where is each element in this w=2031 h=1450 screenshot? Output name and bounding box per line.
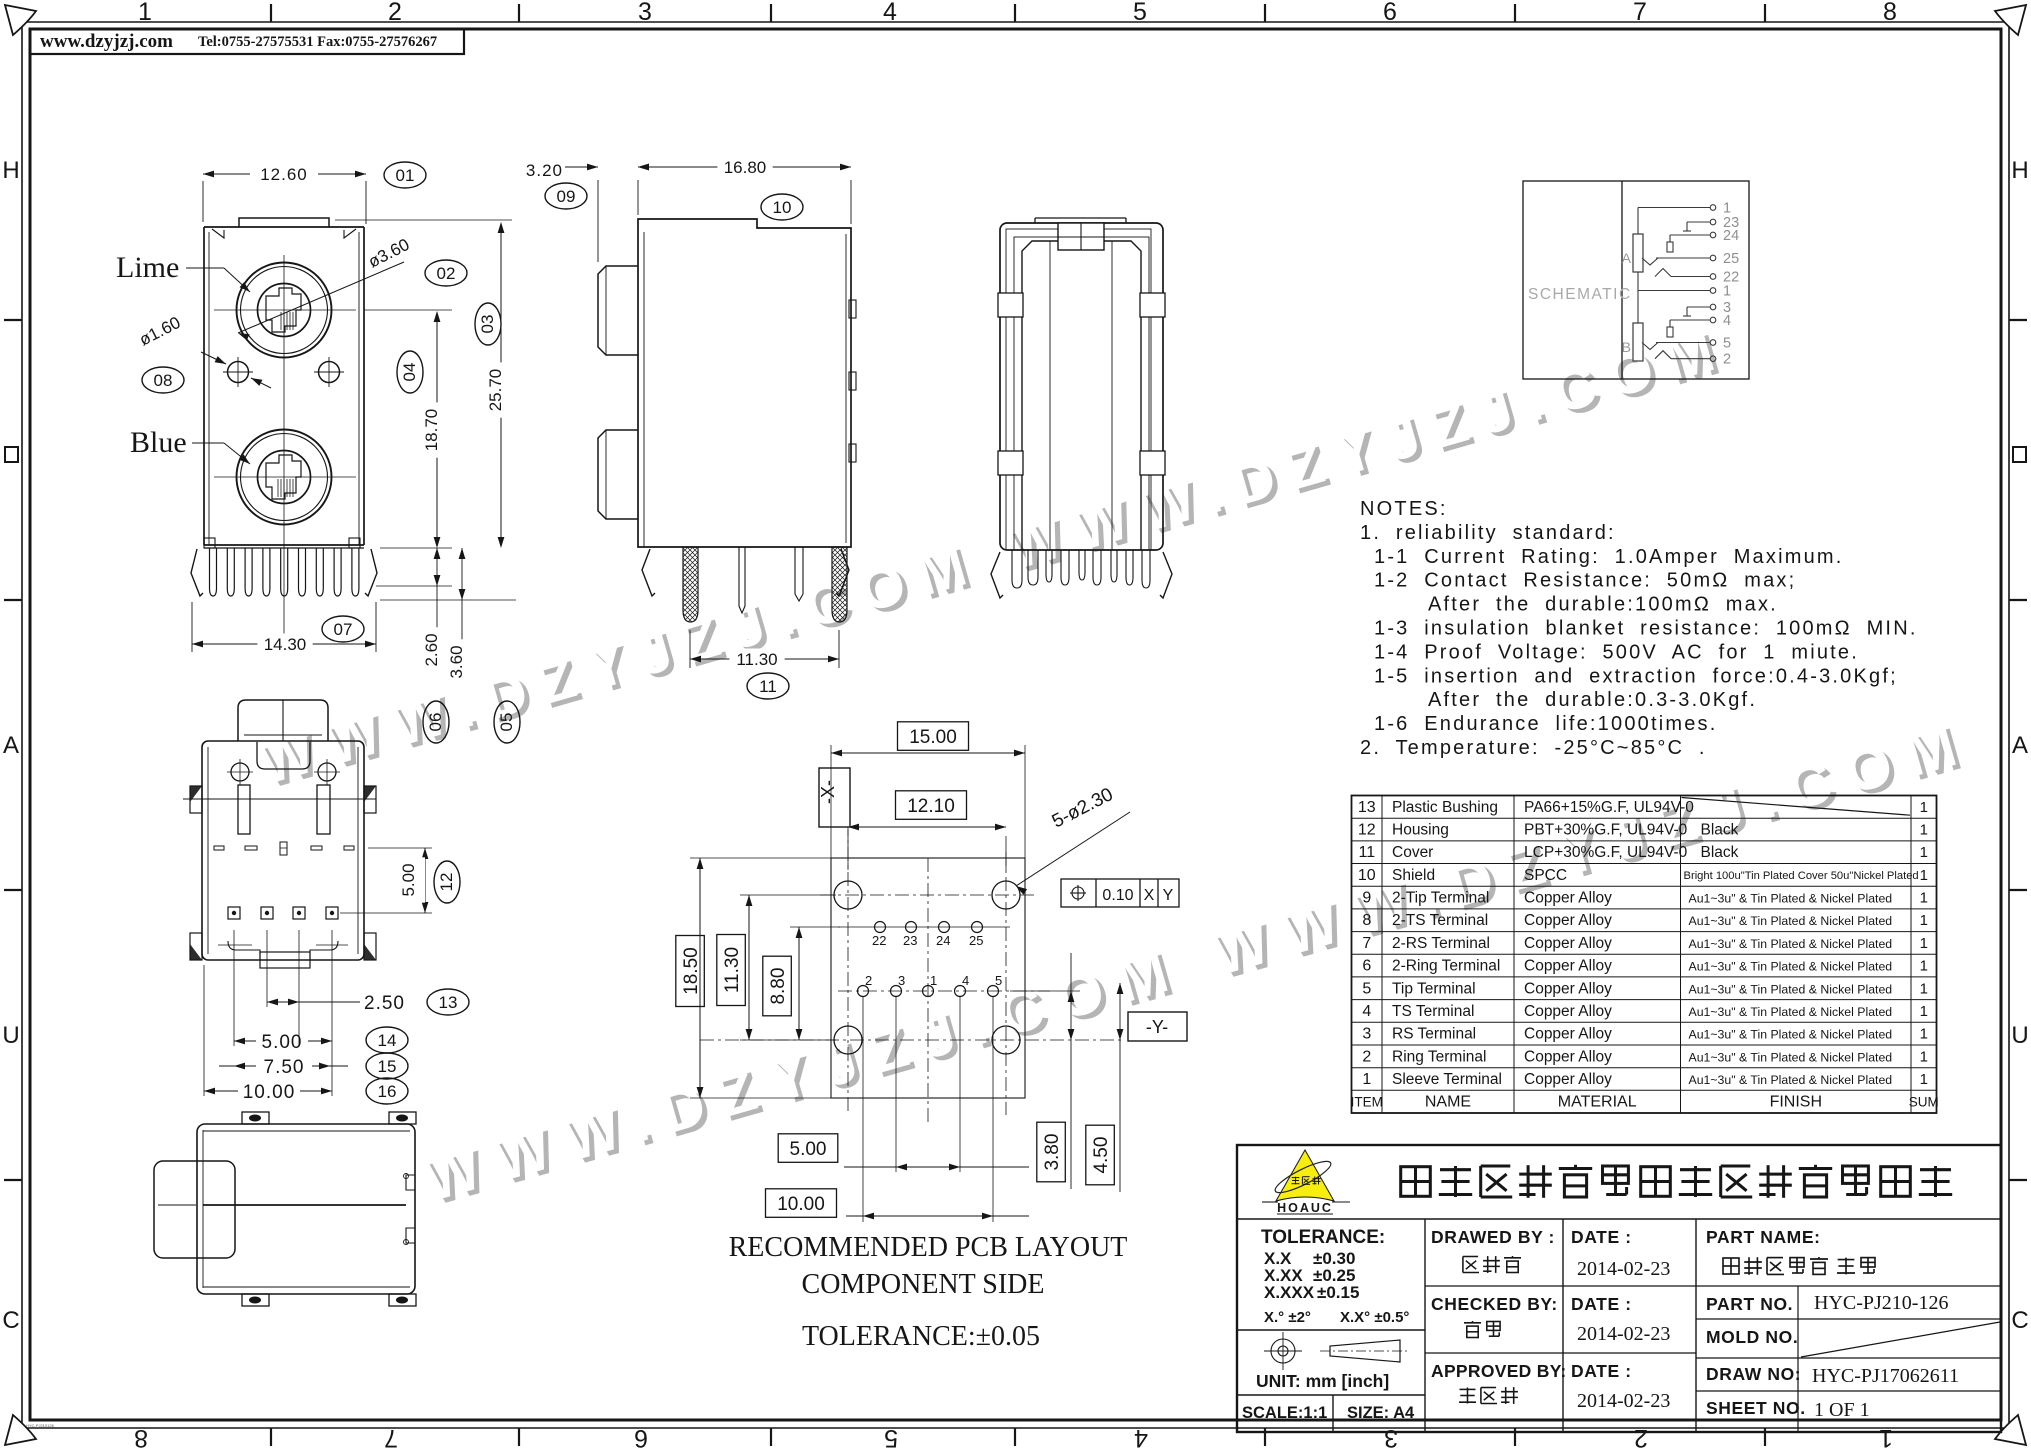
svg-text:2: 2 [1634,1424,1648,1450]
svg-text:1: 1 [1920,958,1928,975]
svg-text:1-2 Contact Resistance: 50mΩ: 1-2 Contact Resistance: 50mΩ max; [1374,570,1796,592]
svg-text:15.00: 15.00 [909,727,957,748]
svg-text:12.60: 12.60 [260,165,308,184]
svg-text:After the durable:0.3-3.0Kgf.: After the durable:0.3-3.0Kgf. [1428,689,1757,711]
svg-text:5: 5 [1362,980,1371,997]
svg-text:Copper Alloy: Copper Alloy [1524,1071,1612,1088]
svg-text:2: 2 [388,0,402,26]
svg-text:3: 3 [638,0,652,26]
svg-text:1: 1 [1920,890,1928,907]
svg-text:1-5 insertion and extraction: 1-5 insertion and extraction force:0.4-3… [1374,665,1898,687]
svg-text:U: U [2011,1022,2028,1049]
svg-text:U: U [2,1022,19,1049]
svg-text:15: 15 [378,1057,397,1076]
svg-text:5: 5 [1133,0,1147,26]
svg-text:HYC-PJ210126: HYC-PJ210126 [26,1423,55,1428]
svg-text:Au1~3u" & Tin Plated & Ni: Au1~3u" & Tin Plated & Nickel Plated [1689,1028,1893,1042]
svg-text:After the durable:100mΩ max.: After the durable:100mΩ max. [1428,594,1778,616]
svg-text:1: 1 [138,0,152,26]
svg-text:SHEET NO.: SHEET NO. [1706,1398,1806,1418]
svg-text:8: 8 [1883,0,1897,26]
svg-text:1: 1 [1920,1048,1928,1065]
svg-text:18.50: 18.50 [681,947,702,995]
svg-text:Shield: Shield [1392,867,1435,884]
svg-text:3.20: 3.20 [526,161,563,180]
svg-text:SCALE:1:1: SCALE:1:1 [1242,1404,1327,1422]
svg-text:C: C [2011,1307,2028,1334]
svg-text:SIZE: A4: SIZE: A4 [1347,1404,1415,1422]
svg-text:Tel:0755-27575531 Fax:0755-27: Tel:0755-27575531 Fax:0755-27576267 [198,34,437,50]
svg-text:DATE :: DATE : [1571,1361,1632,1381]
svg-text:11.30: 11.30 [722,947,743,993]
svg-text:8: 8 [134,1424,148,1450]
svg-text:12: 12 [1358,822,1376,839]
svg-text:1: 1 [1920,867,1928,884]
svg-text:1-3 insulation blanket resis: 1-3 insulation blanket resistance: 100mΩ… [1374,618,1918,640]
svg-text:HYC-PJ17062611: HYC-PJ17062611 [1812,1365,1959,1387]
svg-text:DRAW NO:: DRAW NO: [1706,1364,1801,1384]
svg-text:Au1~3u" & Tin Plated & Ni: Au1~3u" & Tin Plated & Nickel Plated [1689,982,1893,996]
svg-text:18.70: 18.70 [422,409,441,452]
svg-text:HYC-PJ210-126: HYC-PJ210-126 [1814,1292,1948,1314]
svg-text:8: 8 [1362,912,1371,929]
svg-text:1: 1 [1920,844,1928,861]
svg-text:25: 25 [1723,251,1739,267]
svg-text:13: 13 [1358,799,1376,816]
svg-text:DRAWED BY :: DRAWED BY : [1431,1227,1555,1247]
svg-text:Au1~3u" & Tin Plated & Ni: Au1~3u" & Tin Plated & Nickel Plated [1689,960,1893,974]
svg-text:14: 14 [378,1031,397,1050]
svg-text:DATE :: DATE : [1571,1227,1632,1247]
svg-text:1: 1 [1879,1424,1893,1450]
svg-text:24: 24 [936,933,950,948]
svg-text:25.70: 25.70 [486,369,505,412]
svg-text:1 OF 1: 1 OF 1 [1814,1399,1870,1421]
svg-text:1-1 Current Rating: 1.0Amper: 1-1 Current Rating: 1.0Amper Maximum. [1374,546,1844,568]
svg-text:SPCC: SPCC [1524,867,1567,884]
svg-text:X: X [1144,887,1155,904]
svg-text:ITEM: ITEM [1351,1095,1383,1110]
svg-text:2: 2 [1362,1048,1371,1065]
svg-text:LCP+30%G.F, UL94V-0: LCP+30%G.F, UL94V-0 [1524,844,1688,861]
svg-text:Au1~3u" & Tin Plated & Ni: Au1~3u" & Tin Plated & Nickel Plated [1689,914,1893,928]
svg-text:5: 5 [884,1424,898,1450]
svg-text:1: 1 [1362,1071,1371,1088]
svg-text:2: 2 [1723,352,1731,368]
svg-text:1: 1 [1920,935,1928,952]
svg-text:4.50: 4.50 [1091,1137,1112,1174]
svg-text:Bright 100u"Tin Plated Cove: Bright 100u"Tin Plated Cover 50u"Nickel … [1684,870,1919,882]
svg-text:3: 3 [898,973,905,988]
svg-text:1: 1 [1920,1071,1928,1088]
svg-text:B: B [1622,339,1631,355]
svg-text:3.60: 3.60 [447,645,466,678]
svg-text:24: 24 [1723,228,1739,244]
svg-text:2-RS Terminal: 2-RS Terminal [1392,935,1490,952]
svg-text:6: 6 [1362,958,1371,975]
svg-text:±0.15: ±0.15 [1317,1283,1359,1302]
svg-text:DATE :: DATE : [1571,1294,1632,1314]
svg-text:Sleeve Terminal: Sleeve Terminal [1392,1071,1502,1088]
svg-text:Au1~3u" & Tin Plated & Ni: Au1~3u" & Tin Plated & Nickel Plated [1689,937,1893,951]
svg-text:08: 08 [154,371,173,390]
svg-text:13: 13 [439,993,458,1012]
svg-text:Copper Alloy: Copper Alloy [1524,980,1612,997]
svg-text:4: 4 [1362,1003,1371,1020]
svg-text:7: 7 [1362,935,1371,952]
svg-text:Plastic Bushing: Plastic Bushing [1392,799,1498,816]
svg-text:04: 04 [400,363,419,382]
svg-text:H: H [2,157,19,184]
svg-text:6: 6 [1383,0,1397,26]
svg-text:1: 1 [1723,284,1731,300]
svg-text:Au1~3u" & Tin Plated & Ni: Au1~3u" & Tin Plated & Nickel Plated [1689,1005,1893,1019]
svg-text:X.XXX: X.XXX [1264,1283,1315,1302]
svg-text:10: 10 [773,198,792,217]
svg-text:9: 9 [1362,890,1371,907]
svg-text:Copper Alloy: Copper Alloy [1524,1003,1612,1020]
svg-text:12: 12 [437,873,456,892]
svg-text:10.00: 10.00 [243,1082,296,1103]
svg-text:11.30: 11.30 [736,650,777,669]
svg-text:1. reliability standard:: 1. reliability standard: [1360,522,1616,544]
svg-text:1: 1 [1920,822,1928,839]
svg-text:Tip Terminal: Tip Terminal [1392,980,1476,997]
svg-text:1: 1 [930,973,937,988]
svg-text:05: 05 [497,713,516,732]
svg-text:2-Tip Terminal: 2-Tip Terminal [1392,890,1489,907]
svg-text:Cover: Cover [1392,844,1433,861]
svg-text:2. Temperature: -25°C~85°C .: 2. Temperature: -25°C~85°C . [1360,737,1707,759]
svg-text:Copper Alloy: Copper Alloy [1524,912,1612,929]
svg-text:X.X° ±0.5°: X.X° ±0.5° [1340,1309,1409,1326]
svg-text:1: 1 [1920,1003,1928,1020]
svg-text:1-4 Proof Voltage: 500V AC f: 1-4 Proof Voltage: 500V AC for 1 miute. [1374,641,1859,663]
svg-text:7.50: 7.50 [264,1057,305,1078]
svg-text:7: 7 [384,1424,398,1450]
svg-text:2014-02-23: 2014-02-23 [1577,1258,1670,1280]
svg-text:RECOMMENDED PCB LAYOUT: RECOMMENDED PCB LAYOUT [729,1232,1128,1263]
svg-text:NOTES:: NOTES: [1360,498,1448,520]
svg-text:SCHEMATIC: SCHEMATIC [1528,286,1632,303]
svg-text:Au1~3u" & Tin Plated & Ni: Au1~3u" & Tin Plated & Nickel Plated [1689,892,1893,906]
svg-text:PART NO.: PART NO. [1706,1294,1793,1314]
svg-text:11: 11 [1358,844,1375,861]
svg-text:5: 5 [1723,336,1731,352]
svg-text:Blue: Blue [130,426,187,459]
svg-text:NAME: NAME [1425,1094,1471,1111]
svg-text:-X-: -X- [818,780,838,804]
svg-text:X.° ±2°: X.° ±2° [1264,1309,1311,1326]
svg-text:4: 4 [883,0,897,26]
svg-text:Copper Alloy: Copper Alloy [1524,1026,1612,1043]
svg-text:10: 10 [1358,867,1376,884]
svg-text:TOLERANCE:±0.05: TOLERANCE:±0.05 [802,1321,1040,1352]
svg-text:HOAUC: HOAUC [1277,1201,1333,1215]
svg-text:6: 6 [634,1424,648,1450]
svg-text:1: 1 [1920,1026,1928,1043]
svg-text:1: 1 [1920,980,1928,997]
svg-text:1-6 Endurance life:1000times: 1-6 Endurance life:1000times. [1374,713,1718,735]
svg-text:03: 03 [478,315,497,334]
svg-text:Lime: Lime [116,251,179,284]
svg-text:2.50: 2.50 [364,993,405,1014]
svg-text:FINISH: FINISH [1770,1094,1822,1111]
svg-text:07: 07 [334,620,353,639]
svg-text:PBT+30%G.F, UL94V-0: PBT+30%G.F, UL94V-0 [1524,822,1688,839]
svg-text:MATERIAL: MATERIAL [1558,1094,1637,1111]
svg-text:09: 09 [557,187,576,206]
svg-text:A: A [2012,732,2028,759]
svg-text:5.00: 5.00 [262,1032,303,1053]
svg-text:C: C [2,1307,19,1334]
svg-text:2.60: 2.60 [422,633,441,666]
svg-text:12.10: 12.10 [907,796,955,817]
svg-text:A: A [1622,250,1632,266]
svg-text:MOLD NO.: MOLD NO. [1706,1327,1798,1347]
svg-text:Housing: Housing [1392,822,1449,839]
svg-text:06: 06 [426,713,445,732]
svg-text:5.00: 5.00 [399,863,418,896]
svg-text:Copper Alloy: Copper Alloy [1524,890,1612,907]
svg-text:Black: Black [1701,844,1739,861]
svg-text:1: 1 [1920,912,1928,929]
svg-text:3: 3 [1362,1026,1371,1043]
svg-text:1: 1 [1920,799,1928,816]
svg-text:2: 2 [865,973,872,988]
svg-text:Copper Alloy: Copper Alloy [1524,1048,1612,1065]
svg-text:25: 25 [969,933,983,948]
svg-text:Black: Black [1701,822,1739,839]
svg-text:Au1~3u" & Tin Plated & Ni: Au1~3u" & Tin Plated & Nickel Plated [1689,1073,1893,1087]
svg-text:10.00: 10.00 [777,1194,825,1215]
svg-text:PA66+15%G.F, UL94V-0: PA66+15%G.F, UL94V-0 [1524,799,1694,816]
svg-text:23: 23 [903,933,917,948]
svg-text:0.10: 0.10 [1102,887,1133,904]
svg-text:H: H [2011,157,2028,184]
svg-text:11: 11 [759,677,777,696]
svg-text:Copper Alloy: Copper Alloy [1524,958,1612,975]
svg-text:APPROVED BY:: APPROVED BY: [1431,1361,1567,1381]
svg-text:2-Ring Terminal: 2-Ring Terminal [1392,958,1500,975]
svg-text:Ring Terminal: Ring Terminal [1392,1048,1486,1065]
svg-text:Copper Alloy: Copper Alloy [1524,935,1612,952]
svg-text:2014-02-23: 2014-02-23 [1577,1323,1670,1345]
svg-text:01: 01 [396,166,415,185]
svg-text:UNIT: mm [inch]: UNIT: mm [inch] [1256,1371,1389,1391]
svg-text:Y: Y [1163,887,1174,904]
svg-text:3.80: 3.80 [1042,1134,1063,1171]
svg-text:8.80: 8.80 [768,968,789,1005]
svg-text:TOLERANCE:: TOLERANCE: [1261,1227,1385,1248]
svg-text:22: 22 [872,933,886,948]
svg-text:4: 4 [1723,313,1731,329]
svg-text:PART NAME:: PART NAME: [1706,1227,1821,1247]
svg-text:02: 02 [437,264,456,283]
svg-text:RS Terminal: RS Terminal [1392,1026,1476,1043]
svg-text:16.80: 16.80 [724,158,767,177]
svg-text:5: 5 [995,973,1002,988]
svg-text:COMPONENT SIDE: COMPONENT SIDE [802,1269,1045,1300]
svg-text:4: 4 [962,973,969,988]
svg-text:TS Terminal: TS Terminal [1392,1003,1474,1020]
svg-text:2014-02-23: 2014-02-23 [1577,1390,1670,1412]
svg-text:SUM: SUM [1909,1095,1939,1110]
svg-text:14.30: 14.30 [264,635,307,654]
svg-text:www.dzyjzj.com: www.dzyjzj.com [40,31,173,52]
svg-text:7: 7 [1633,0,1647,26]
svg-text:A: A [3,732,19,759]
svg-text:Au1~3u" & Tin Plated & Ni: Au1~3u" & Tin Plated & Nickel Plated [1689,1050,1893,1064]
svg-text:CHECKED BY:: CHECKED BY: [1431,1294,1558,1314]
svg-text:4: 4 [1134,1424,1148,1450]
svg-text:2-TS Terminal: 2-TS Terminal [1392,912,1488,929]
svg-text:-Y-: -Y- [1146,1017,1168,1037]
svg-text:5.00: 5.00 [790,1139,827,1160]
svg-text:3: 3 [1384,1424,1398,1450]
svg-text:16: 16 [378,1082,397,1101]
